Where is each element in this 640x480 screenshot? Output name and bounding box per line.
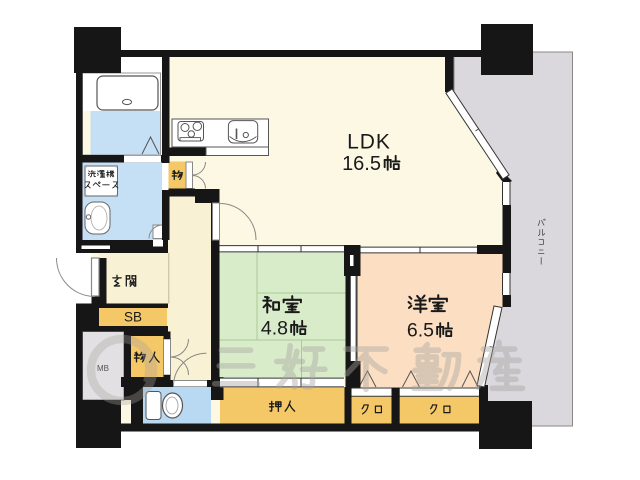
svg-text:LDK: LDK <box>347 131 391 154</box>
svg-text:MB: MB <box>97 364 109 373</box>
svg-text:4.8: 4.8 <box>261 318 288 340</box>
svg-text:16.5: 16.5 <box>342 153 381 175</box>
svg-text:SB: SB <box>124 310 142 325</box>
svg-text:6.5: 6.5 <box>407 320 434 342</box>
